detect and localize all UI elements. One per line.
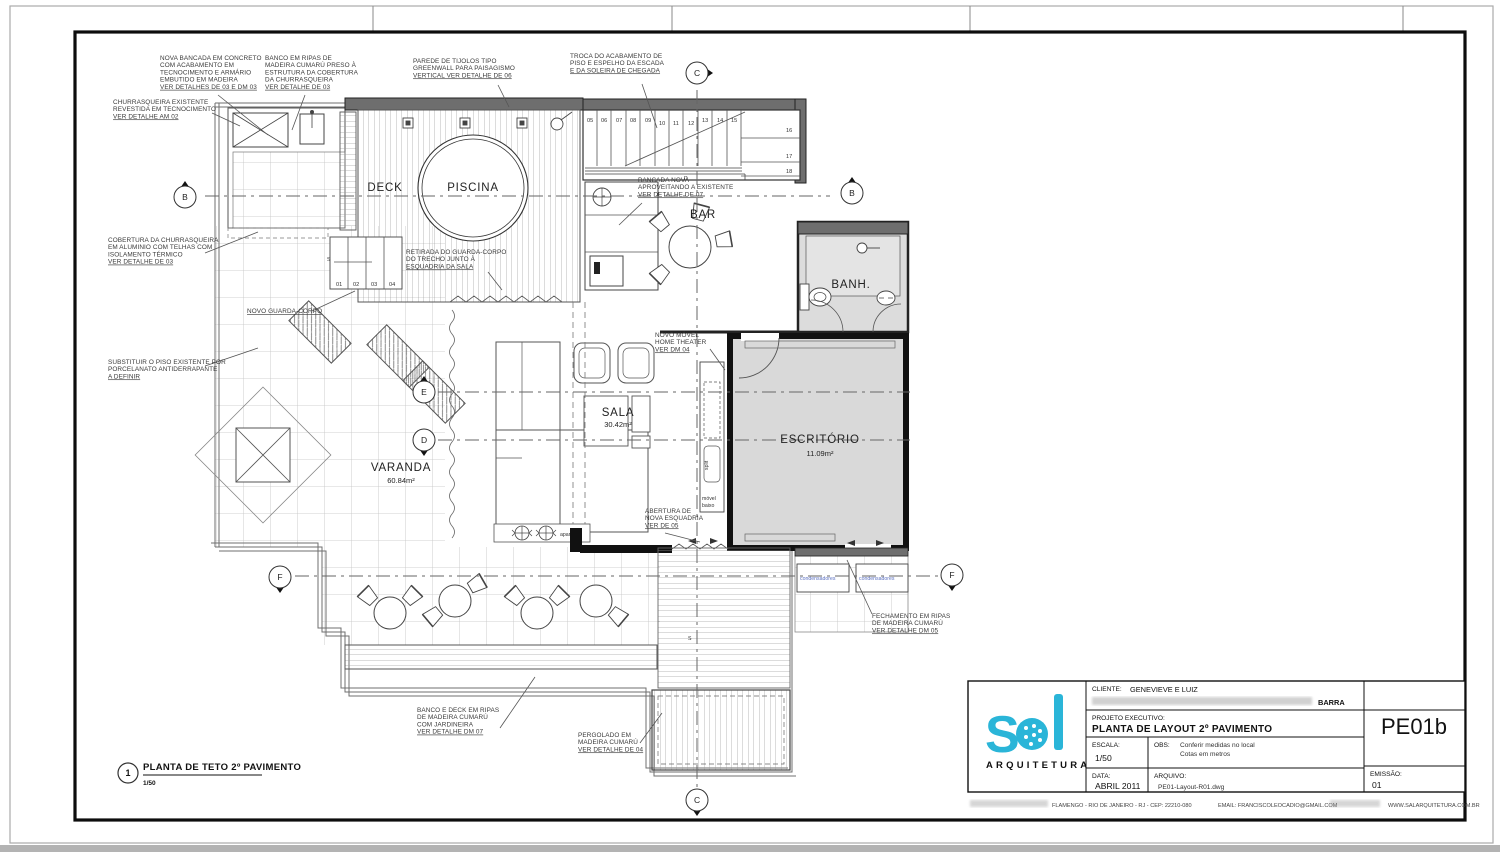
file-value: PE01-Layout-R01.dwg [1158,784,1225,791]
scale-value: 1/50 [1095,753,1112,763]
stair-num: 06 [601,118,607,124]
stair-num: 11 [673,121,679,127]
room-label-piscina: PISCINA [447,182,499,194]
client-value: GENEVIEVE E LUIZ [1130,685,1198,694]
stair-num: 14 [717,118,723,124]
bar-sink-symbol [593,188,611,206]
sheet-code: PE01b [1381,714,1447,739]
drawing-sheet-viewport: 01 02 03 04 S 05 [0,0,1500,852]
room-area-varanda: 60.84m² [387,476,415,485]
room-label-sala: SALA [602,407,635,419]
stair-up-label: S [327,257,331,263]
stair-num: 18 [786,169,792,175]
stair-num: 09 [645,118,651,124]
armchair [618,343,654,383]
client-label: CLIENTE: [1092,686,1122,693]
file-label: ARQUIVO: [1154,773,1186,780]
split-label: split [704,460,710,470]
svg-text:D: D [421,435,427,445]
sink-fixture [877,291,895,305]
stair-num: 08 [630,118,636,124]
viewport-bottom-band [0,845,1500,852]
svg-text:E: E [421,387,427,397]
note-nova-bancada: NOVA BANCADA EM CONCRETOCOM ACABAMENTO E… [160,55,262,91]
redacted-street [970,800,1048,807]
stair-num: 10 [659,121,665,127]
logo-letter-l [1054,694,1063,750]
note-troca-acabamento: TROCA DO ACABAMENTO DEPISO E ESPELHO DA … [570,53,665,74]
svg-text:C: C [694,795,700,805]
redacted-phone [1330,800,1380,807]
svg-text:B: B [849,188,855,198]
stair-num: 05 [587,118,593,124]
stair-num: 17 [786,154,792,160]
pergola-area: S [652,548,790,770]
fridge-handle [594,262,600,274]
movel-baixo-label: móvel [702,496,716,502]
email-text: EMAIL: FRANCISCOLEOCADIO@GMAIL.COM [1218,803,1338,809]
stair-num: 02 [353,282,359,288]
stair-num: 13 [702,118,708,124]
cad-sheet-svg: 01 02 03 04 S 05 [0,0,1500,852]
project-value: PLANTA DE LAYOUT 2º PAVIMENTO [1092,724,1272,735]
room-label-varanda: VARANDA [371,462,431,474]
redacted-address [1092,697,1312,705]
condenser-label: condensadores [859,576,895,582]
drawing-number: 1 [125,768,130,778]
date-value: ABRIL 2011 [1095,781,1141,791]
armchair [574,343,610,383]
project-label: PROJETO EXECUTIVO: [1092,715,1165,722]
room-area-escritorio: 11.09m² [807,449,834,458]
website-text: WWW.SALARQUITETURA.COM.BR [1388,803,1480,809]
stair-num: 07 [616,118,622,124]
obs-line2: Cotas em metros [1180,751,1231,758]
stair-num: 03 [371,282,377,288]
client-address-visible: BARRA [1318,698,1345,707]
svg-text:F: F [277,572,282,582]
svg-text:C: C [694,68,700,78]
date-label: DATA: [1092,773,1111,780]
logo-letter-s: S [985,706,1020,764]
room-label-bar: BAR [690,209,716,221]
stairs-lower: 01 02 03 04 S [327,237,402,289]
churrasqueira-block [228,108,356,238]
title-block: S ARQUITETURA CLIENTE: GENEVIEVE E LUIZ … [968,681,1480,809]
svg-text:F: F [949,570,954,580]
obs-line1: Conferir medidas no local [1180,742,1255,749]
stair-num: 16 [786,128,792,134]
towel-ring [857,243,867,253]
svg-text:B: B [182,192,188,202]
stair-num: 04 [389,282,395,288]
stair-num: 15 [731,118,737,124]
home-theater-unit: split móvel baixo [700,362,724,512]
stair-num: 12 [688,121,694,127]
address-text: FLAMENGO - RIO DE JANEIRO - RJ - CEP: 22… [1052,803,1192,809]
room-label-escritorio: ESCRITÓRIO [780,433,860,446]
stair-num: 01 [336,282,342,288]
room-label-deck: DECK [367,182,402,194]
emission-label: EMISSÃO: [1370,769,1402,778]
scale-label: ESCALA: [1092,742,1120,749]
note-novo-guarda-corpo: NOVO GUARDA-CORPO [247,308,322,315]
bar-table [669,226,711,268]
stairs-upper: 05 06 07 08 09 10 11 12 13 14 15 16 17 1… [583,110,800,182]
stair-up-label: S [688,636,692,642]
deck-bench-strip [345,645,657,669]
logo-subtitle: ARQUITETURA [986,760,1090,771]
emission-value: 01 [1372,780,1382,790]
side-table [632,396,650,432]
door-opening [741,333,779,341]
drawing-scale: 1/50 [143,780,156,787]
obs-label: OBS: [1154,742,1170,749]
condenser-label: condensadores [800,576,836,582]
room-area-sala: 30.42m² [604,420,632,429]
movel-baixo-label: baixo [702,503,715,509]
drawing-title-text: PLANTA DE TETO 2º PAVIMENTO [143,762,301,773]
room-label-banh: BANH. [831,279,870,291]
bench-strip [340,112,356,230]
